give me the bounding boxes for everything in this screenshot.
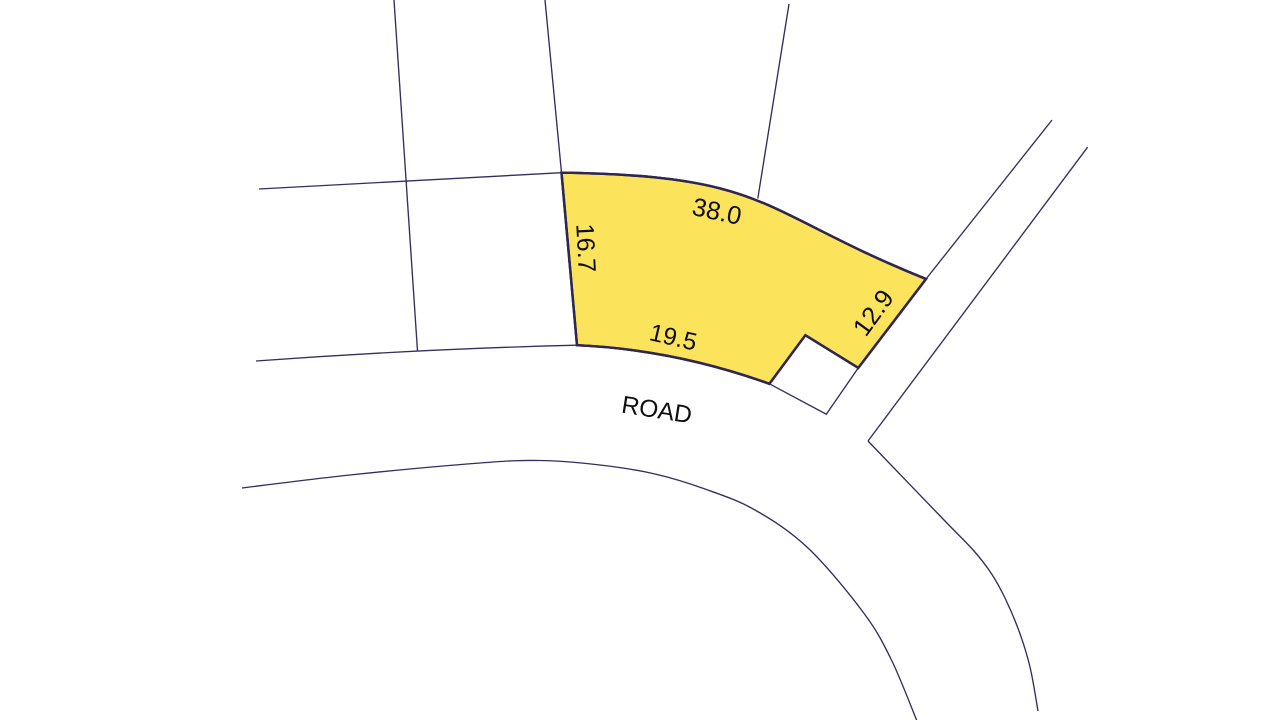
svg-text:16.7: 16.7 — [570, 223, 601, 273]
svg-text:ROAD: ROAD — [620, 392, 694, 430]
